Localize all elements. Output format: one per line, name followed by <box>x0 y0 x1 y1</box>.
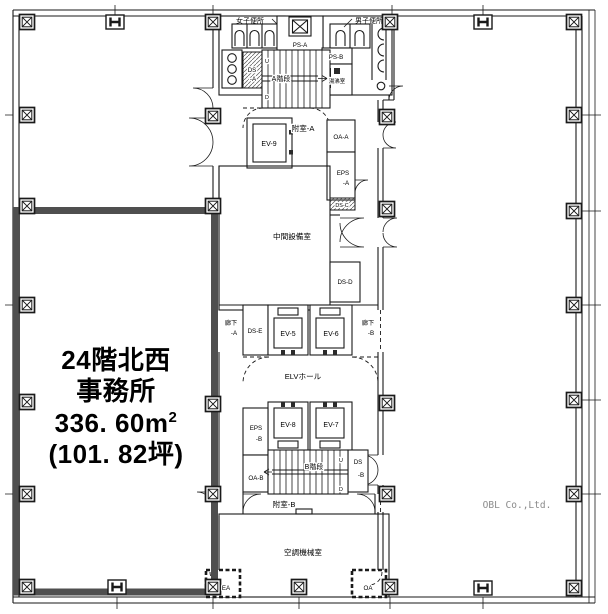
vestibule-a-label: 附室-A <box>292 123 316 133</box>
stair-b-up: U <box>339 458 343 464</box>
office-title-line2: 事務所 <box>76 376 156 406</box>
eps-b-label-1: EPS <box>250 425 262 432</box>
ds-b-label-1: DS <box>354 459 363 466</box>
office-title-line4: (101. 82坪) <box>48 439 183 469</box>
ev8-label: EV-8 <box>280 422 295 429</box>
floor-plan-svg: 女子便所 男子便所 PS-A DS -A A階段 U D PS-B 湯沸室 附室… <box>0 0 608 614</box>
ea-label: EA <box>222 585 231 592</box>
oa-b-label: OA-B <box>248 475 263 482</box>
ev9-label: EV-9 <box>261 141 276 148</box>
corridor-b-label-1: 廊下 <box>362 319 374 327</box>
oa-a-label: OA-A <box>333 134 349 141</box>
office-title-line1: 24階北西 <box>61 345 170 375</box>
ds-c-label: DS-C <box>335 203 348 209</box>
ds-d-label: DS-D <box>337 279 353 286</box>
office-title-line3: 336. 60m2 <box>55 408 178 438</box>
vestibule-b-label: 附室-B <box>273 499 296 509</box>
hot-water-label: 湯沸室 <box>329 77 346 85</box>
oa-shaft <box>352 570 386 597</box>
floor-plan-page: 女子便所 男子便所 PS-A DS -A A階段 U D PS-B 湯沸室 附室… <box>0 0 608 614</box>
nw-office-title: 24階北西 事務所 336. 60m2 (101. 82坪) <box>48 345 183 469</box>
office-area-exponent: 2 <box>169 409 178 426</box>
elv-hall-label: ELVホール <box>285 372 322 381</box>
ps-a-label: PS-A <box>293 42 308 49</box>
company-watermark: OBL Co.,Ltd. <box>483 500 552 511</box>
ps-b-label: PS-B <box>329 54 343 61</box>
vestibule-a <box>243 108 330 168</box>
stair-a-down: D <box>265 95 269 101</box>
ev7-label: EV-7 <box>323 422 338 429</box>
ds-b-label-2: -B <box>358 472 364 479</box>
men-toilet-label: 男子便所 <box>355 16 383 25</box>
ds-a-label-1: DS <box>248 67 257 74</box>
stair-b-down: D <box>339 487 343 493</box>
stair-a-label: A階段 <box>272 74 291 83</box>
corridor-a-label-2: -A <box>231 330 238 337</box>
ac-machine-label: 空調機械室 <box>284 547 322 557</box>
corridor-b-label-2: -B <box>368 330 374 337</box>
eps-b-label-2: -B <box>256 436 262 443</box>
stair-b-label: B階段 <box>305 462 324 471</box>
stairway-b <box>264 450 348 494</box>
oa-label: OA <box>364 585 374 592</box>
office-area-value: 336. 60m <box>55 408 169 438</box>
ps-a-shaft <box>277 16 323 55</box>
stair-a-up: U <box>265 59 269 65</box>
ev6-label: EV-6 <box>323 331 338 338</box>
ev5-label: EV-5 <box>280 331 295 338</box>
ds-e-label: DS-E <box>248 328 263 335</box>
corridor-a-label-1: 廊下 <box>225 319 237 327</box>
middle-equipment-label: 中間設備室 <box>273 231 311 241</box>
eps-a-label-2: -A <box>343 180 350 187</box>
ds-a-label-2: -A <box>250 76 257 83</box>
elevator-hall-block <box>219 305 378 355</box>
women-toilet-label: 女子便所 <box>236 16 264 25</box>
eps-a-label-1: EPS <box>337 170 349 177</box>
